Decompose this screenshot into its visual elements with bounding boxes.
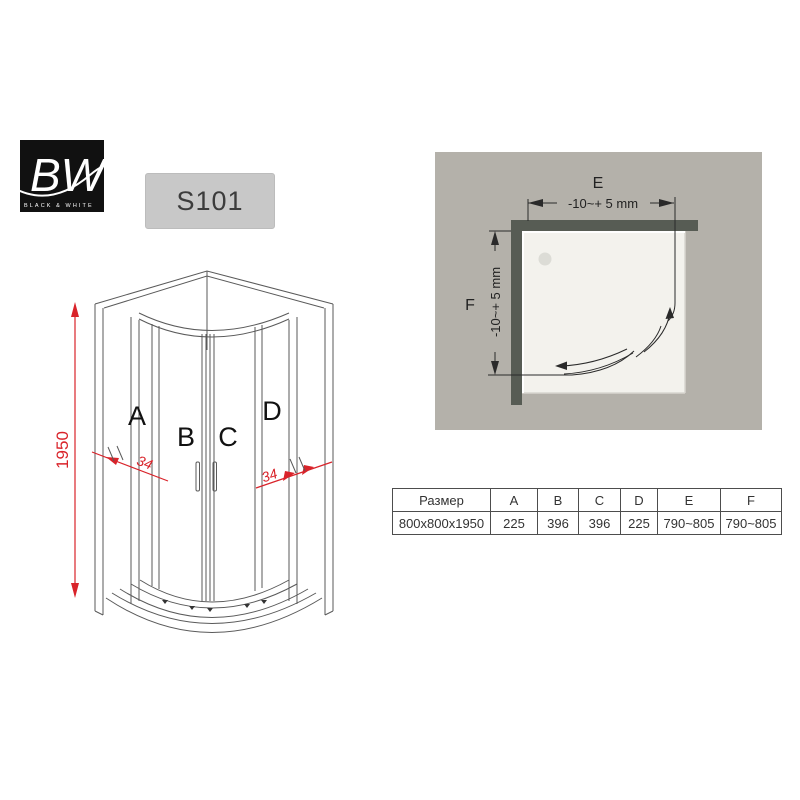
model-code-label: S101	[176, 186, 243, 217]
drain-dot	[539, 253, 552, 266]
width-tolerance: -10~+ 5 mm	[568, 196, 638, 211]
brand-logo: BW BLACK & WHITE	[10, 135, 135, 217]
profile-dimension-right: 34	[256, 457, 332, 488]
spec-header-f: F	[721, 489, 782, 512]
wall-left	[511, 220, 522, 405]
panel-label-b: B	[177, 422, 195, 452]
spec-header-b: B	[538, 489, 579, 512]
front-view-drawing: A B C D 1950 34 34	[55, 235, 345, 675]
spec-header-e: E	[658, 489, 721, 512]
logo-initials: BW	[30, 149, 109, 201]
door-handle-left	[196, 462, 200, 491]
spec-value-b: 396	[538, 512, 579, 535]
height-dimension-value: 1950	[55, 431, 72, 469]
model-code-box: S101	[145, 173, 275, 229]
spec-table-header-row: Размер A B C D E F	[393, 489, 782, 512]
depth-tolerance: -10~+ 5 mm	[488, 267, 503, 337]
spec-value-c: 396	[579, 512, 621, 535]
spec-header-d: D	[621, 489, 658, 512]
spec-value-e: 790~805	[658, 512, 721, 535]
right-wall-profile	[289, 304, 333, 615]
spec-table-value-row: 800x800x1950 225 396 396 225 790~805 790…	[393, 512, 782, 535]
wall-top	[511, 220, 698, 231]
spec-header-a: A	[491, 489, 538, 512]
spec-header-size: Размер	[393, 489, 491, 512]
panel-label-c: C	[218, 422, 238, 452]
height-dimension: 1950	[55, 302, 79, 598]
spec-value-f: 790~805	[721, 512, 782, 535]
spec-value-a: 225	[491, 512, 538, 535]
spec-value-d: 225	[621, 512, 658, 535]
top-view-drawing: E -10~+ 5 mm F -10~+ 5 mm	[435, 152, 762, 430]
spec-header-c: C	[579, 489, 621, 512]
panel-label-a: A	[128, 401, 146, 431]
glass-panels	[152, 324, 262, 601]
spec-value-size: 800x800x1950	[393, 512, 491, 535]
top-rail	[139, 313, 289, 337]
logo-name: BLACK & WHITE	[24, 203, 94, 209]
depth-label: F	[465, 297, 475, 314]
panel-label-d: D	[262, 396, 282, 426]
spec-table: Размер A B C D E F 800x800x1950 225 396 …	[392, 488, 782, 535]
width-label: E	[593, 175, 604, 192]
